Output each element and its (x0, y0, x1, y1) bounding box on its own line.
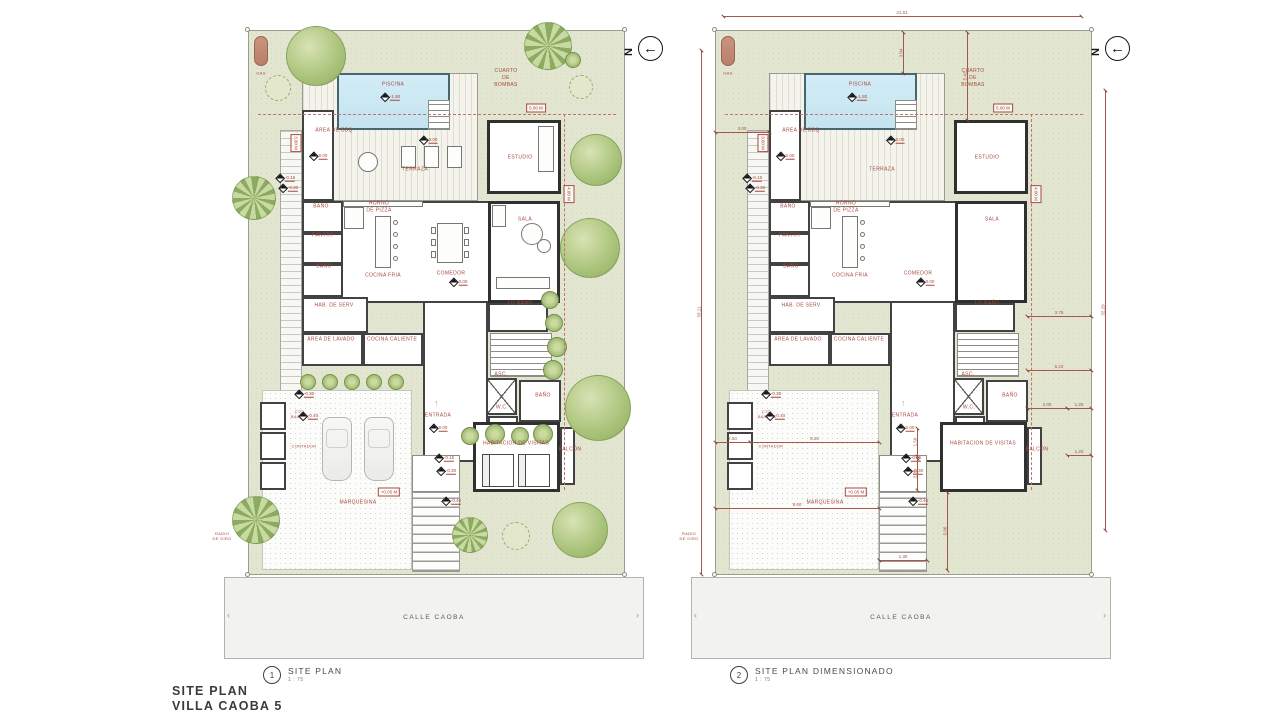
pool-steps (895, 100, 917, 130)
room-label: MARQUESINA (806, 500, 843, 507)
pizza-oven (344, 207, 364, 229)
island-stool (393, 256, 398, 261)
elevation-value: -0.30 (304, 391, 314, 398)
elevation-marker: 0.00 (898, 425, 915, 432)
dimension-line (715, 132, 769, 133)
bush-tree-icon (265, 75, 291, 101)
room-label: ESTUDIO (508, 155, 533, 162)
elevation-value: -1.80 (390, 94, 400, 101)
dimension-value: 8.20 (810, 436, 819, 441)
north-arrow-icon: ← (638, 36, 663, 61)
lot-corner-marker (245, 27, 250, 32)
dimension-line (1067, 408, 1091, 409)
dining-table (437, 223, 463, 263)
dimension-line (750, 442, 879, 443)
elevation-diamond-icon (916, 277, 925, 286)
pool-steps (428, 100, 450, 130)
dimension-value: 1.30 (899, 554, 908, 559)
ring-tree-icon (543, 360, 563, 380)
car (364, 417, 394, 481)
elevation-diamond-icon (766, 411, 775, 420)
room-label: SALA (518, 217, 532, 224)
elevation-value: -0.30 (446, 468, 456, 475)
elevation-value: -0.15 (752, 175, 762, 182)
room-label: W.C. (496, 405, 508, 412)
car (322, 417, 352, 481)
elevation-value: -0.30 (755, 185, 765, 192)
view-marker-number: 2 (730, 666, 748, 684)
dimension-line (1067, 455, 1091, 456)
room-label: COCINA FRIA (832, 273, 868, 280)
title-line-1: SITE PLAN (172, 684, 283, 699)
plan-2: PISCINACUARTO DE BOMBASÁREA DE BBQTERRAZ… (715, 30, 1092, 575)
dimension-value: 32.29 (1101, 304, 1106, 315)
room-label: HABITACION DE VISITAS (483, 441, 549, 448)
elevation-diamond-icon (904, 466, 913, 475)
palm-tree-icon (232, 176, 276, 220)
elevation-diamond-icon (419, 135, 428, 144)
elevation-marker: -0.30 (438, 468, 456, 475)
dining-chair (431, 251, 436, 258)
annotation-label: GAS (723, 70, 732, 75)
dimension-line (1027, 370, 1091, 371)
room-label: COMEDOR (437, 271, 466, 278)
room-label: ÁREA DE LAVADO (774, 337, 822, 344)
balcon-room (1027, 427, 1042, 485)
palm-tree-icon (232, 496, 280, 544)
room-label: MARQUESINA (339, 500, 376, 507)
entrada-arrow-icon: ↑ (901, 398, 906, 408)
room-label: BAÑO (313, 204, 329, 211)
elevation-marker: -0.30 (747, 185, 765, 192)
setback-box: 5.00 M (993, 104, 1013, 113)
room-label: BALCÓN (1026, 447, 1049, 454)
elevation-diamond-icon (743, 173, 752, 182)
elevation-diamond-icon (896, 423, 905, 432)
view-marker-name: SITE PLAN DIMENSIONADO (755, 666, 894, 676)
site-plan-sheet: SITE PLAN VILLA CAOBA 5 PISCINACUARTO DE… (0, 0, 1280, 720)
utility-box-2 (260, 432, 286, 460)
elevation-marker: -1.80 (849, 94, 867, 101)
elevation-diamond-icon (295, 389, 304, 398)
setback-dashed-line (258, 114, 616, 115)
dimension-line (715, 508, 879, 509)
room-label: BAÑO (780, 204, 796, 211)
elevation-value: 0.00 (429, 137, 438, 144)
canopy-tree-icon (286, 26, 346, 86)
ring-tree-icon (545, 314, 563, 332)
dimension-line (1027, 316, 1091, 317)
elevation-diamond-icon (848, 92, 857, 101)
elevation-marker: 0.00 (421, 137, 438, 144)
elevation-value: 0.00 (459, 279, 468, 286)
room-label: HAB. DE SERV (314, 303, 353, 310)
annotation-label: GAS (256, 70, 265, 75)
elevation-marker: -0.30 (763, 391, 781, 398)
annotation-label: RADIO DE GIRO (680, 531, 699, 541)
side-path (747, 130, 769, 392)
kitchen-island (375, 216, 391, 268)
elevation-marker: -0.15 (436, 455, 454, 462)
dimension-value: 1.25 (1075, 402, 1084, 407)
room-label: BAÑO (535, 393, 551, 400)
room-label: ENTRADA (425, 413, 451, 420)
elevation-value: 0.00 (896, 137, 905, 144)
room-label: BAÑO (783, 264, 799, 271)
elevation-marker: 0.00 (311, 153, 328, 160)
utility-box-3 (727, 462, 753, 490)
dimension-value: 3.00 (913, 470, 918, 479)
room-label: PANTRY (779, 233, 801, 240)
room-label: HAB. DE SERV (781, 303, 820, 310)
elevation-value: -0.40 (308, 413, 318, 420)
guest-bed (482, 454, 514, 487)
elevation-value: -0.40 (918, 498, 928, 505)
elevation-marker: 0.00 (778, 153, 795, 160)
room-label: ASC. (961, 372, 974, 379)
elevation-marker: -0.15 (277, 175, 295, 182)
setback-dashed-line (564, 114, 565, 490)
elevation-diamond-icon (746, 183, 755, 192)
room-label: ENTRADA (892, 413, 918, 420)
setback-box: 3.00 M (758, 134, 769, 152)
elevation-value: -0.30 (771, 391, 781, 398)
setback-box: 5.00 M (526, 104, 546, 113)
deck-lounger (424, 146, 439, 168)
dimension-value: 3.78 (1055, 310, 1064, 315)
view-marker-scale: 1 : 75 (288, 677, 304, 683)
canopy-tree-icon (565, 375, 631, 441)
bano-3-room (519, 380, 561, 422)
room-label: ESTUDIO (975, 155, 1000, 162)
room-label: HABITACION DE VISITAS (950, 441, 1016, 448)
street-name-label: CALLE CAOBA (692, 614, 1110, 621)
dimension-line (723, 16, 1081, 17)
dimension-line (879, 560, 927, 561)
elevation-diamond-icon (886, 135, 895, 144)
habitacion-visitas-room (940, 422, 1027, 492)
elevation-marker: 0.00 (918, 279, 935, 286)
elevation-diamond-icon (429, 423, 438, 432)
elevation-value: 0.00 (439, 425, 448, 432)
title-line-2: VILLA CAOBA 5 (172, 699, 283, 714)
dimension-value: 5.23 (1055, 364, 1064, 369)
lot-corner-marker (712, 27, 717, 32)
canopy-tree-icon (560, 218, 620, 278)
bano-3-room (986, 380, 1028, 422)
island-stool (860, 232, 865, 237)
dining-chair (431, 239, 436, 246)
deck-lounger (447, 146, 462, 168)
ring-tree-icon (461, 427, 479, 445)
gas-tank (254, 36, 268, 66)
dimension-value: 8.60 (793, 502, 802, 507)
island-stool (393, 220, 398, 225)
room-label: ÁREA DE BBQ (315, 128, 352, 135)
dimension-tick (699, 572, 703, 576)
setback-box: 3.00 M (291, 134, 302, 152)
elevation-value: 0.00 (906, 425, 915, 432)
utility-box-1 (260, 402, 286, 430)
balcon-room (560, 427, 575, 485)
elevation-marker: -0.30 (296, 391, 314, 398)
annotation-label: RADIO DE GIRO (213, 531, 232, 541)
setback-box: +0.05 M (378, 488, 400, 497)
deck-lounger (401, 146, 416, 168)
annotation-label: CONTADOR (759, 443, 784, 448)
elevation-value: -0.30 (288, 185, 298, 192)
island-stool (860, 244, 865, 249)
elevation-value: -0.15 (285, 175, 295, 182)
dimension-tick (1103, 528, 1107, 532)
dining-chair (464, 251, 469, 258)
canopy-tree-icon (552, 502, 608, 558)
dimension-value: 2.00 (1043, 402, 1052, 407)
room-label: ÁREA DE BBQ (782, 128, 819, 135)
room-label: PISCINA (849, 82, 871, 89)
view-marker-name: SITE PLAN (288, 666, 342, 676)
ring-tree-icon (366, 374, 382, 390)
dimension-value: 5.06 (943, 527, 948, 536)
elevation-diamond-icon (762, 389, 771, 398)
dimension-value: 3.00 (738, 126, 747, 131)
elevation-marker: -0.40 (767, 413, 785, 420)
elevation-value: -0.40 (451, 498, 461, 505)
plan-1: PISCINACUARTO DE BOMBASÁREA DE BBQTERRAZ… (248, 30, 625, 575)
bush-tree-icon (569, 75, 593, 99)
room-label: ÁREA DE LAVADO (307, 337, 355, 344)
elevation-diamond-icon (449, 277, 458, 286)
lot-corner-marker (622, 27, 627, 32)
utility-box-1 (727, 402, 753, 430)
view-marker-scale: 1 : 75 (755, 677, 771, 683)
dimension-value: 3.04 (899, 48, 904, 57)
room-label: BAÑO (1002, 393, 1018, 400)
room-label: BAÑO (316, 264, 332, 271)
dimension-value: 5.42 (963, 72, 968, 81)
island-stool (393, 232, 398, 237)
street-break-mark-icon: › (1103, 610, 1106, 620)
room-label: BALCÓN (559, 447, 582, 454)
dimension-line (1027, 408, 1067, 409)
elevation-marker: -1.80 (382, 94, 400, 101)
elevation-diamond-icon (279, 183, 288, 192)
elevation-value: 0.00 (926, 279, 935, 286)
elevation-value: 0.00 (786, 153, 795, 160)
elevation-marker: -0.30 (280, 185, 298, 192)
ring-tree-icon (344, 374, 360, 390)
room-label: COCINA CALIENTE (834, 337, 884, 344)
room-label: SALA (985, 217, 999, 224)
elevation-value: 0.00 (319, 153, 328, 160)
street-band: CALLE CAOBA‹› (691, 577, 1111, 659)
dimension-value: 2.50 (728, 436, 737, 441)
elevation-diamond-icon (442, 496, 451, 505)
deck-table (358, 152, 378, 172)
island-stool (860, 256, 865, 261)
elevation-diamond-icon (435, 453, 444, 462)
elevation-value: -1.80 (857, 94, 867, 101)
north-arrow-icon: ← (1105, 36, 1130, 61)
dimension-value: 33.11 (697, 307, 702, 318)
elevation-diamond-icon (381, 92, 390, 101)
room-label: TERRAZA (402, 167, 428, 174)
elevation-marker: 0.00 (431, 425, 448, 432)
view-marker-number: 1 (263, 666, 281, 684)
room-label: HORNO DE PIZZA (833, 200, 858, 214)
elevation-diamond-icon (276, 173, 285, 182)
page-title: SITE PLAN VILLA CAOBA 5 (172, 684, 283, 715)
guest-bed (518, 454, 550, 487)
bush-tree-icon (502, 522, 530, 550)
dining-chair (464, 227, 469, 234)
elevation-diamond-icon (437, 466, 446, 475)
setback-dashed-line (725, 114, 1083, 115)
room-label: COCINA FRIA (365, 273, 401, 280)
dimension-value: 1.25 (1075, 449, 1084, 454)
gas-tank (721, 36, 735, 66)
elevation-marker: -0.40 (910, 498, 928, 505)
interior-stairs (957, 333, 1019, 377)
room-label: HORNO DE PIZZA (366, 200, 391, 214)
island-stool (860, 220, 865, 225)
room-label: PISCINA (382, 82, 404, 89)
pizza-oven (811, 207, 831, 229)
elevation-marker: 0.00 (451, 279, 468, 286)
kitchen-island (842, 216, 858, 268)
dimension-line (715, 442, 750, 443)
street-band: CALLE CAOBA‹› (224, 577, 644, 659)
setback-box: +0.05 M (845, 488, 867, 497)
room-label: ASC. (494, 372, 507, 379)
ring-tree-icon (541, 291, 559, 309)
room-label: COCINA CALIENTE (367, 337, 417, 344)
north-letter: N (1090, 48, 1102, 56)
elevation-marker: 0.00 (888, 137, 905, 144)
elevation-value: -0.40 (775, 413, 785, 420)
setback-box: 4.00 M (1031, 185, 1042, 203)
dimension-value: 21.61 (896, 10, 907, 15)
north-letter: N (623, 48, 635, 56)
entrada-arrow-icon: ↑ (434, 398, 439, 408)
annotation-label: CONTADOR (292, 443, 317, 448)
setback-dashed-line (1031, 114, 1032, 490)
elevation-value: -0.15 (444, 455, 454, 462)
street-break-mark-icon: ‹ (227, 610, 230, 620)
dining-chair (464, 239, 469, 246)
elevation-diamond-icon (909, 496, 918, 505)
ring-tree-icon (388, 374, 404, 390)
setback-box: 4.00 M (564, 185, 575, 203)
elevation-diamond-icon (299, 411, 308, 420)
canopy-tree-icon (570, 134, 622, 186)
utility-box-3 (260, 462, 286, 490)
room-label: CUARTO DE BOMBAS (494, 68, 518, 88)
sala-sofa (496, 277, 550, 289)
room-label: COMEDOR (904, 271, 933, 278)
dimension-tick (721, 14, 725, 18)
sala-lounge (537, 239, 551, 253)
ring-tree-icon (322, 374, 338, 390)
street-break-mark-icon: › (636, 610, 639, 620)
elevation-marker: -0.15 (744, 175, 762, 182)
palm-tree-icon (452, 517, 488, 553)
ring-tree-icon (300, 374, 316, 390)
estudio-sofa (538, 126, 554, 172)
street-name-label: CALLE CAOBA (225, 614, 643, 621)
room-label: 1/2 BAÑO (974, 301, 999, 308)
lot-corner-marker (1089, 27, 1094, 32)
street-break-mark-icon: ‹ (694, 610, 697, 620)
room-label: 1/2 BAÑO (507, 301, 532, 308)
room-label: PANTRY (312, 233, 334, 240)
room-label: W.C. (963, 405, 975, 412)
elevation-marker: -0.40 (443, 498, 461, 505)
dimension-value: 1.50 (913, 438, 918, 447)
elevation-diamond-icon (776, 151, 785, 160)
elevation-diamond-icon (309, 151, 318, 160)
side-path (280, 130, 302, 392)
sala-armchair (492, 205, 506, 227)
elevation-marker: -0.40 (300, 413, 318, 420)
room-label: TERRAZA (869, 167, 895, 174)
ring-tree-icon (565, 52, 581, 68)
dining-chair (431, 227, 436, 234)
island-stool (393, 244, 398, 249)
elevation-diamond-icon (902, 453, 911, 462)
